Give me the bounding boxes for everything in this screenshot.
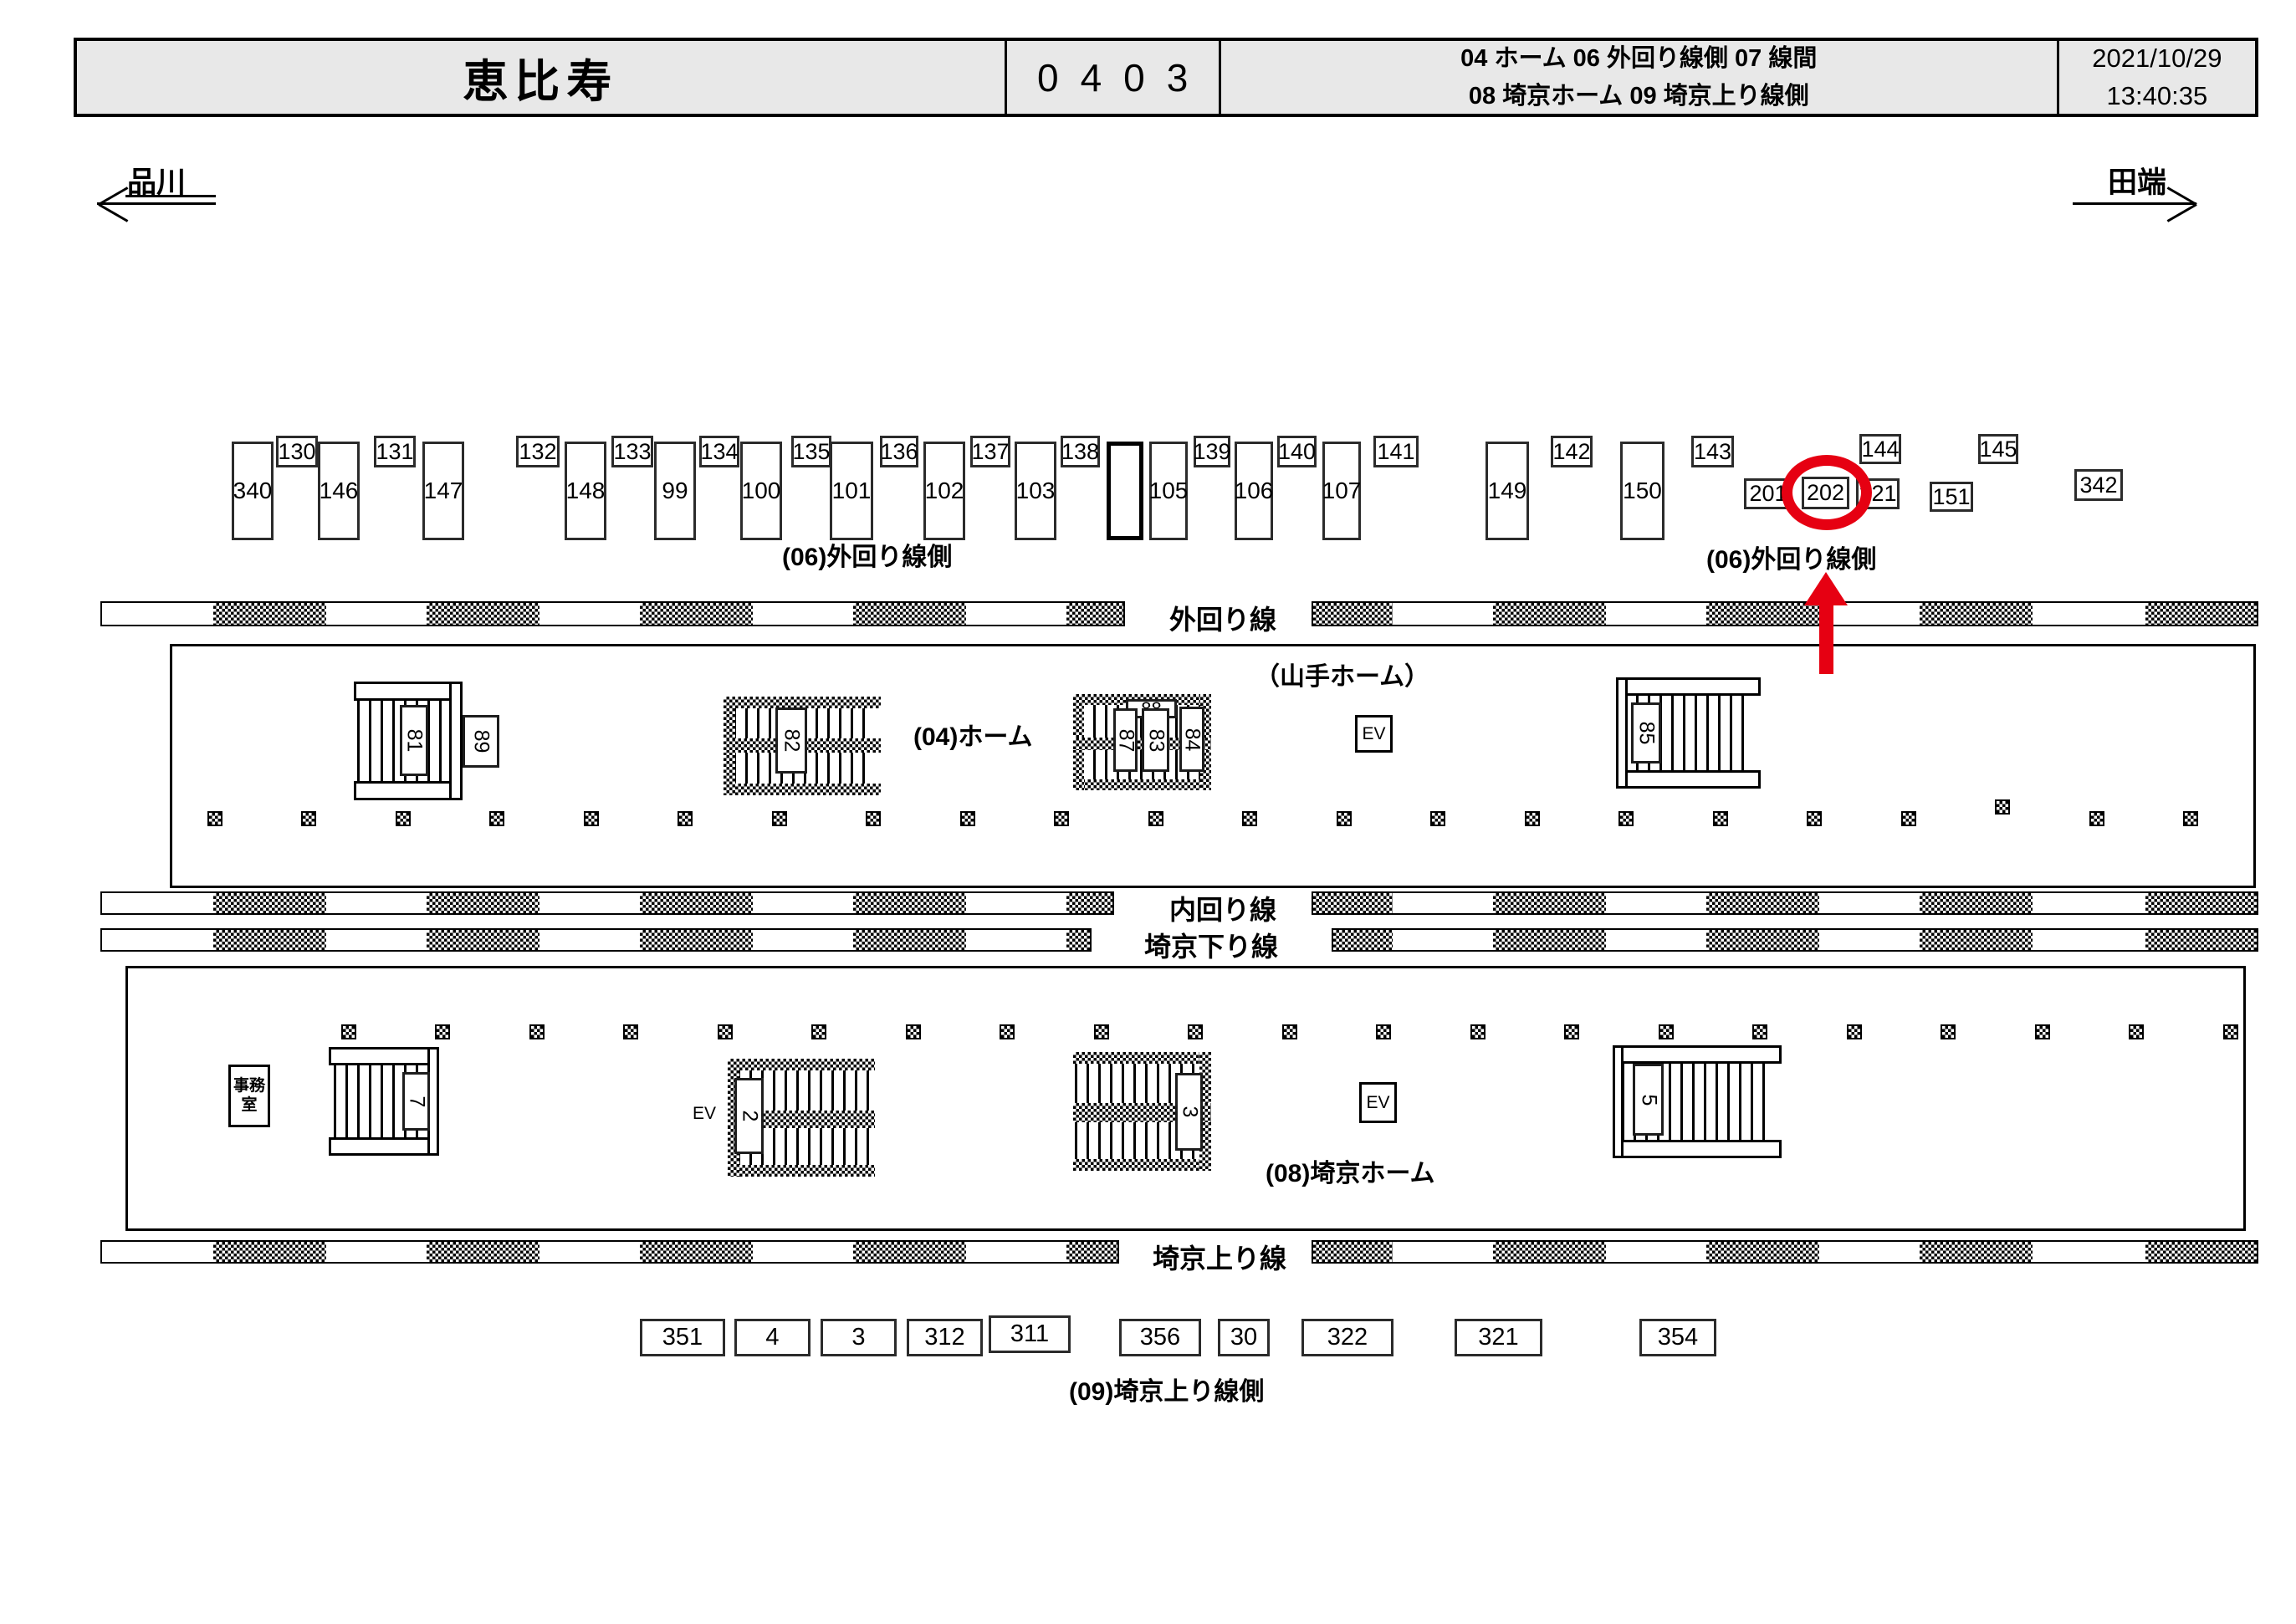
position-box-131[interactable]: 131 <box>374 436 416 467</box>
arrow-right-icon <box>2167 203 2197 222</box>
stair-number: 7 <box>404 1095 428 1107</box>
stair-number-box: 3 <box>1175 1073 1203 1151</box>
hatch-segment <box>1920 603 2033 625</box>
stair-number-box: 82 <box>775 707 807 774</box>
hatch-segment <box>1313 1242 1393 1262</box>
pillar-icon <box>1618 811 1634 826</box>
pillar-icon <box>811 1024 826 1039</box>
track-bar-saikyo-kudari <box>100 928 1092 952</box>
elevator-box: EV <box>1355 715 1393 753</box>
track-bar-sotomawari <box>100 601 1125 626</box>
hatch-segment <box>1313 603 1393 625</box>
hatch-segment <box>1066 893 1112 913</box>
position-box-103[interactable]: 103 <box>1015 442 1056 540</box>
position-box-139[interactable]: 139 <box>1194 436 1230 467</box>
position-box-322[interactable]: 322 <box>1301 1319 1393 1356</box>
pillar-icon <box>1094 1024 1109 1039</box>
direction-right-label: 田端 <box>2108 159 2166 202</box>
pillar-icon <box>584 811 599 826</box>
stair-number-box: 2 <box>734 1078 764 1154</box>
stair-hatch-band <box>1073 1052 1211 1064</box>
position-box-106[interactable]: 106 <box>1235 442 1273 540</box>
pillar-icon <box>2223 1024 2238 1039</box>
stair-number-box-89: 89 <box>463 715 499 768</box>
pillar-icon <box>772 811 787 826</box>
position-box-102[interactable]: 102 <box>923 442 965 540</box>
legend-line-2: 08 埼京ホーム 09 埼京上り線側 <box>1469 78 1809 115</box>
position-box-149[interactable]: 149 <box>1485 442 1529 540</box>
pillar-icon <box>207 811 222 826</box>
hatch-segment <box>1706 930 1819 950</box>
hatch-segment <box>427 930 539 950</box>
pillar-icon <box>906 1024 921 1039</box>
hatch-segment <box>1493 930 1606 950</box>
hatch-segment <box>1313 893 1393 913</box>
stair-number-box: 5 <box>1633 1064 1664 1136</box>
hatch-segment <box>1706 603 1819 625</box>
hatch-segment <box>427 603 539 625</box>
hatch-segment <box>1333 930 1393 950</box>
track-bar-sotomawari <box>1312 601 2258 626</box>
track-bar-saikyo-nobori <box>100 1240 1119 1264</box>
stair-number: 83 <box>1143 728 1168 752</box>
pillar-icon <box>396 811 411 826</box>
position-box-151[interactable]: 151 <box>1930 482 1973 512</box>
stair-number: 3 <box>1177 1106 1201 1118</box>
hatch-segment <box>1920 930 2033 950</box>
pillar-icon <box>960 811 975 826</box>
position-box-99[interactable]: 99 <box>654 442 696 540</box>
position-box-145[interactable]: 145 <box>1978 434 2018 464</box>
stairway-7: 7 <box>329 1047 439 1156</box>
station-code: 0403 <box>1015 55 1209 100</box>
arrow-left-icon <box>98 203 128 222</box>
pillar-icon <box>301 811 316 826</box>
outer-loop-side-label-right: (06)外回り線側 <box>1706 539 1876 575</box>
position-box-134[interactable]: 134 <box>699 436 739 467</box>
stair-number: 84 <box>1180 728 1204 751</box>
pillar-icon <box>1188 1024 1203 1039</box>
hatch-segment <box>640 893 753 913</box>
position-box-321[interactable]: 321 <box>1455 1319 1542 1356</box>
stair-number: 89 <box>469 730 493 753</box>
hatch-segment <box>213 893 326 913</box>
position-box-342[interactable]: 342 <box>2074 469 2123 501</box>
position-box-130[interactable]: 130 <box>276 436 318 467</box>
hatch-segment <box>640 1242 753 1262</box>
hatch-segment <box>853 930 966 950</box>
pillar-icon <box>1752 1024 1767 1039</box>
pillar-icon <box>1470 1024 1485 1039</box>
pillar-icon <box>1430 811 1445 826</box>
track-label-saikyo-kudari: 埼京下り線 <box>1144 926 1278 964</box>
pillar-icon <box>1659 1024 1674 1039</box>
track-label-uchimawari: 内回り線 <box>1169 889 1276 927</box>
stair-flange <box>354 781 463 800</box>
position-box-142[interactable]: 142 <box>1551 436 1593 467</box>
hatch-segment <box>1493 603 1606 625</box>
station-name-cell: 恵比寿 <box>77 41 1005 114</box>
stair-hatch-band <box>724 784 881 795</box>
stairway-82: 82 <box>724 697 881 795</box>
stair-flange <box>1616 770 1761 789</box>
pillar-icon <box>1376 1024 1391 1039</box>
highlight-arrow-shaft <box>1819 602 1833 674</box>
legend-line-1: 04 ホーム 06 外回り線側 07 線間 <box>1460 40 1817 78</box>
hatch-segment <box>640 930 753 950</box>
stair-number-box: 83 <box>1142 708 1169 772</box>
hatch-segment <box>2145 1242 2257 1262</box>
position-box-101[interactable]: 101 <box>830 442 873 540</box>
position-box-150[interactable]: 150 <box>1620 442 1664 540</box>
position-box-blank[interactable] <box>1107 442 1143 540</box>
pillar-icon <box>1713 811 1728 826</box>
arrow-right-shaft <box>2073 202 2196 205</box>
pillar-icon <box>1282 1024 1297 1039</box>
stair-cap <box>449 682 463 800</box>
position-box-141[interactable]: 141 <box>1373 436 1419 467</box>
stairway-85: 85 <box>1616 677 1761 789</box>
hatch-segment <box>1706 1242 1819 1262</box>
stair-number: 82 <box>780 729 804 753</box>
pillar-icon <box>1525 811 1540 826</box>
track-bar-saikyo-kudari <box>1332 928 2258 952</box>
stair-flange <box>1613 1045 1782 1064</box>
hatch-segment <box>213 603 326 625</box>
home-04-label: (04)ホーム <box>913 716 1032 753</box>
position-box-354[interactable]: 354 <box>1639 1319 1716 1356</box>
time-text: 13:40:35 <box>2107 78 2208 115</box>
hatch-segment <box>2145 893 2257 913</box>
position-box-146[interactable]: 146 <box>318 442 360 540</box>
highlight-circle-202 <box>1782 455 1872 530</box>
stair-number-box: 81 <box>400 705 428 776</box>
pillar-icon <box>2183 811 2198 826</box>
stairway-3: 3 <box>1073 1052 1211 1171</box>
pillar-icon <box>718 1024 733 1039</box>
outer-loop-side-label-left: (06)外回り線側 <box>782 536 952 573</box>
position-box-144[interactable]: 144 <box>1859 434 1901 464</box>
pillar-icon <box>2035 1024 2050 1039</box>
hatch-segment <box>213 930 326 950</box>
pillar-icon <box>678 811 693 826</box>
stair-cap <box>1616 677 1628 789</box>
position-box-4[interactable]: 4 <box>734 1319 811 1356</box>
stair-hatch-band <box>728 1165 875 1177</box>
hatch-segment <box>1493 893 1606 913</box>
stair-number: 2 <box>737 1111 761 1122</box>
position-box-132[interactable]: 132 <box>516 436 560 467</box>
pillar-icon <box>1564 1024 1579 1039</box>
hatch-segment <box>2145 930 2257 950</box>
hatch-segment <box>427 1242 539 1262</box>
station-layout-monitor: 恵比寿 0403 04 ホーム 06 外回り線側 07 線間 08 埼京ホーム … <box>0 0 2296 1624</box>
stairway-5: 5 <box>1613 1045 1782 1158</box>
hatch-segment <box>853 893 966 913</box>
pillar-icon <box>1941 1024 1956 1039</box>
position-box-147[interactable]: 147 <box>422 442 464 540</box>
pillar-icon <box>489 811 504 826</box>
office-room-box: 事務室 <box>228 1065 270 1127</box>
header-bar: 恵比寿 0403 04 ホーム 06 外回り線側 07 線間 08 埼京ホーム … <box>74 38 2258 117</box>
track-bar-saikyo-nobori <box>1312 1240 2258 1264</box>
station-name: 恵比寿 <box>463 44 618 110</box>
position-box-148[interactable]: 148 <box>565 442 606 540</box>
track-label-sotomawari: 外回り線 <box>1169 599 1276 637</box>
position-box-311[interactable]: 311 <box>989 1315 1071 1353</box>
stair-flange <box>1613 1140 1782 1158</box>
stair-number-box: 84 <box>1179 707 1204 772</box>
yamanote-home-label: （山手ホーム） <box>1255 656 1429 692</box>
date-text: 2021/10/29 <box>2092 40 2222 78</box>
stair-flange <box>1616 677 1761 696</box>
position-box-140[interactable]: 140 <box>1277 436 1317 467</box>
position-box-100[interactable]: 100 <box>740 442 782 540</box>
datetime-cell: 2021/10/29 13:40:35 <box>2057 41 2255 114</box>
hatch-segment <box>853 1242 966 1262</box>
position-box-356[interactable]: 356 <box>1119 1319 1201 1356</box>
stairway-group-83: 88 87 83 84 <box>1073 694 1211 790</box>
hatch-segment <box>213 1242 326 1262</box>
position-box-312[interactable]: 312 <box>907 1319 983 1356</box>
stair-hatch-band <box>724 697 881 708</box>
hatch-segment <box>1920 1242 2033 1262</box>
track-label-saikyo-nobori: 埼京上り線 <box>1153 1238 1286 1276</box>
position-box-3[interactable]: 3 <box>821 1319 897 1356</box>
pillar-icon <box>1807 811 1822 826</box>
stair-hatch-band <box>728 1059 875 1070</box>
hatch-segment <box>1706 893 1819 913</box>
position-box-351[interactable]: 351 <box>640 1319 725 1356</box>
pillar-icon <box>623 1024 638 1039</box>
hatch-segment <box>2145 603 2257 625</box>
pillar-icon <box>1847 1024 1862 1039</box>
stair-number-box: 7 <box>402 1072 430 1131</box>
saikyo-up-side-09-label: (09)埼京上り線側 <box>1069 1371 1264 1407</box>
arrow-left-shaft <box>97 202 216 205</box>
pillar-icon <box>1995 799 2010 815</box>
position-box-105[interactable]: 105 <box>1149 442 1188 540</box>
stair-number: 87 <box>1113 728 1138 752</box>
stair-number: 81 <box>402 729 427 753</box>
position-box-30[interactable]: 30 <box>1218 1319 1270 1356</box>
hatch-segment <box>1920 893 2033 913</box>
pillar-icon <box>1000 1024 1015 1039</box>
pillar-icon <box>341 1024 356 1039</box>
pillar-icon <box>866 811 881 826</box>
track-bar-uchimawari <box>100 891 1114 915</box>
pillar-icon <box>2129 1024 2144 1039</box>
position-box-135[interactable]: 135 <box>791 436 831 467</box>
stair-flange <box>354 682 463 701</box>
position-box-133[interactable]: 133 <box>611 436 653 467</box>
position-box-138[interactable]: 138 <box>1061 436 1100 467</box>
stairway-2: 2 <box>728 1059 875 1177</box>
pillar-icon <box>1054 811 1069 826</box>
track-bar-uchimawari <box>1312 891 2258 915</box>
stair-flange <box>329 1047 439 1065</box>
hatch-segment <box>1066 930 1090 950</box>
pillar-icon <box>1242 811 1257 826</box>
stair-number-box: 85 <box>1631 702 1661 763</box>
hatch-segment <box>853 603 966 625</box>
elevator-text: EV <box>693 1104 716 1124</box>
pillar-icon <box>1337 811 1352 826</box>
highlight-arrow-icon <box>1804 572 1848 605</box>
stair-flange <box>329 1137 439 1156</box>
hatch-segment <box>640 603 753 625</box>
stairway-81: 81 <box>354 682 463 800</box>
elevator-box: EV <box>1359 1082 1397 1123</box>
position-box-136[interactable]: 136 <box>880 436 918 467</box>
pillar-icon <box>2089 811 2104 826</box>
pillar-icon <box>529 1024 545 1039</box>
legend-cell: 04 ホーム 06 外回り線側 07 線間 08 埼京ホーム 09 埼京上り線側 <box>1219 41 2057 114</box>
hatch-segment <box>1493 1242 1606 1262</box>
hatch-segment <box>1066 603 1123 625</box>
position-box-137[interactable]: 137 <box>970 436 1010 467</box>
pillar-icon <box>1901 811 1916 826</box>
stair-hatch-band <box>1073 1159 1211 1171</box>
position-box-143[interactable]: 143 <box>1691 436 1734 467</box>
position-box-107[interactable]: 107 <box>1322 442 1361 540</box>
hatch-segment <box>1066 1242 1117 1262</box>
pillar-icon <box>1148 811 1163 826</box>
saikyo-home-08-label: (08)埼京ホーム <box>1266 1152 1434 1189</box>
stair-number: 85 <box>1634 722 1659 745</box>
stair-number-box: 87 <box>1113 708 1138 772</box>
pillar-icon <box>435 1024 450 1039</box>
station-code-cell: 0403 <box>1005 41 1219 114</box>
stair-number: 5 <box>1636 1094 1660 1106</box>
position-box-340[interactable]: 340 <box>232 442 274 540</box>
stair-hatch-band <box>1073 779 1211 790</box>
direction-left-underline <box>125 195 216 197</box>
hatch-segment <box>427 893 539 913</box>
stair-cap <box>1613 1045 1624 1158</box>
